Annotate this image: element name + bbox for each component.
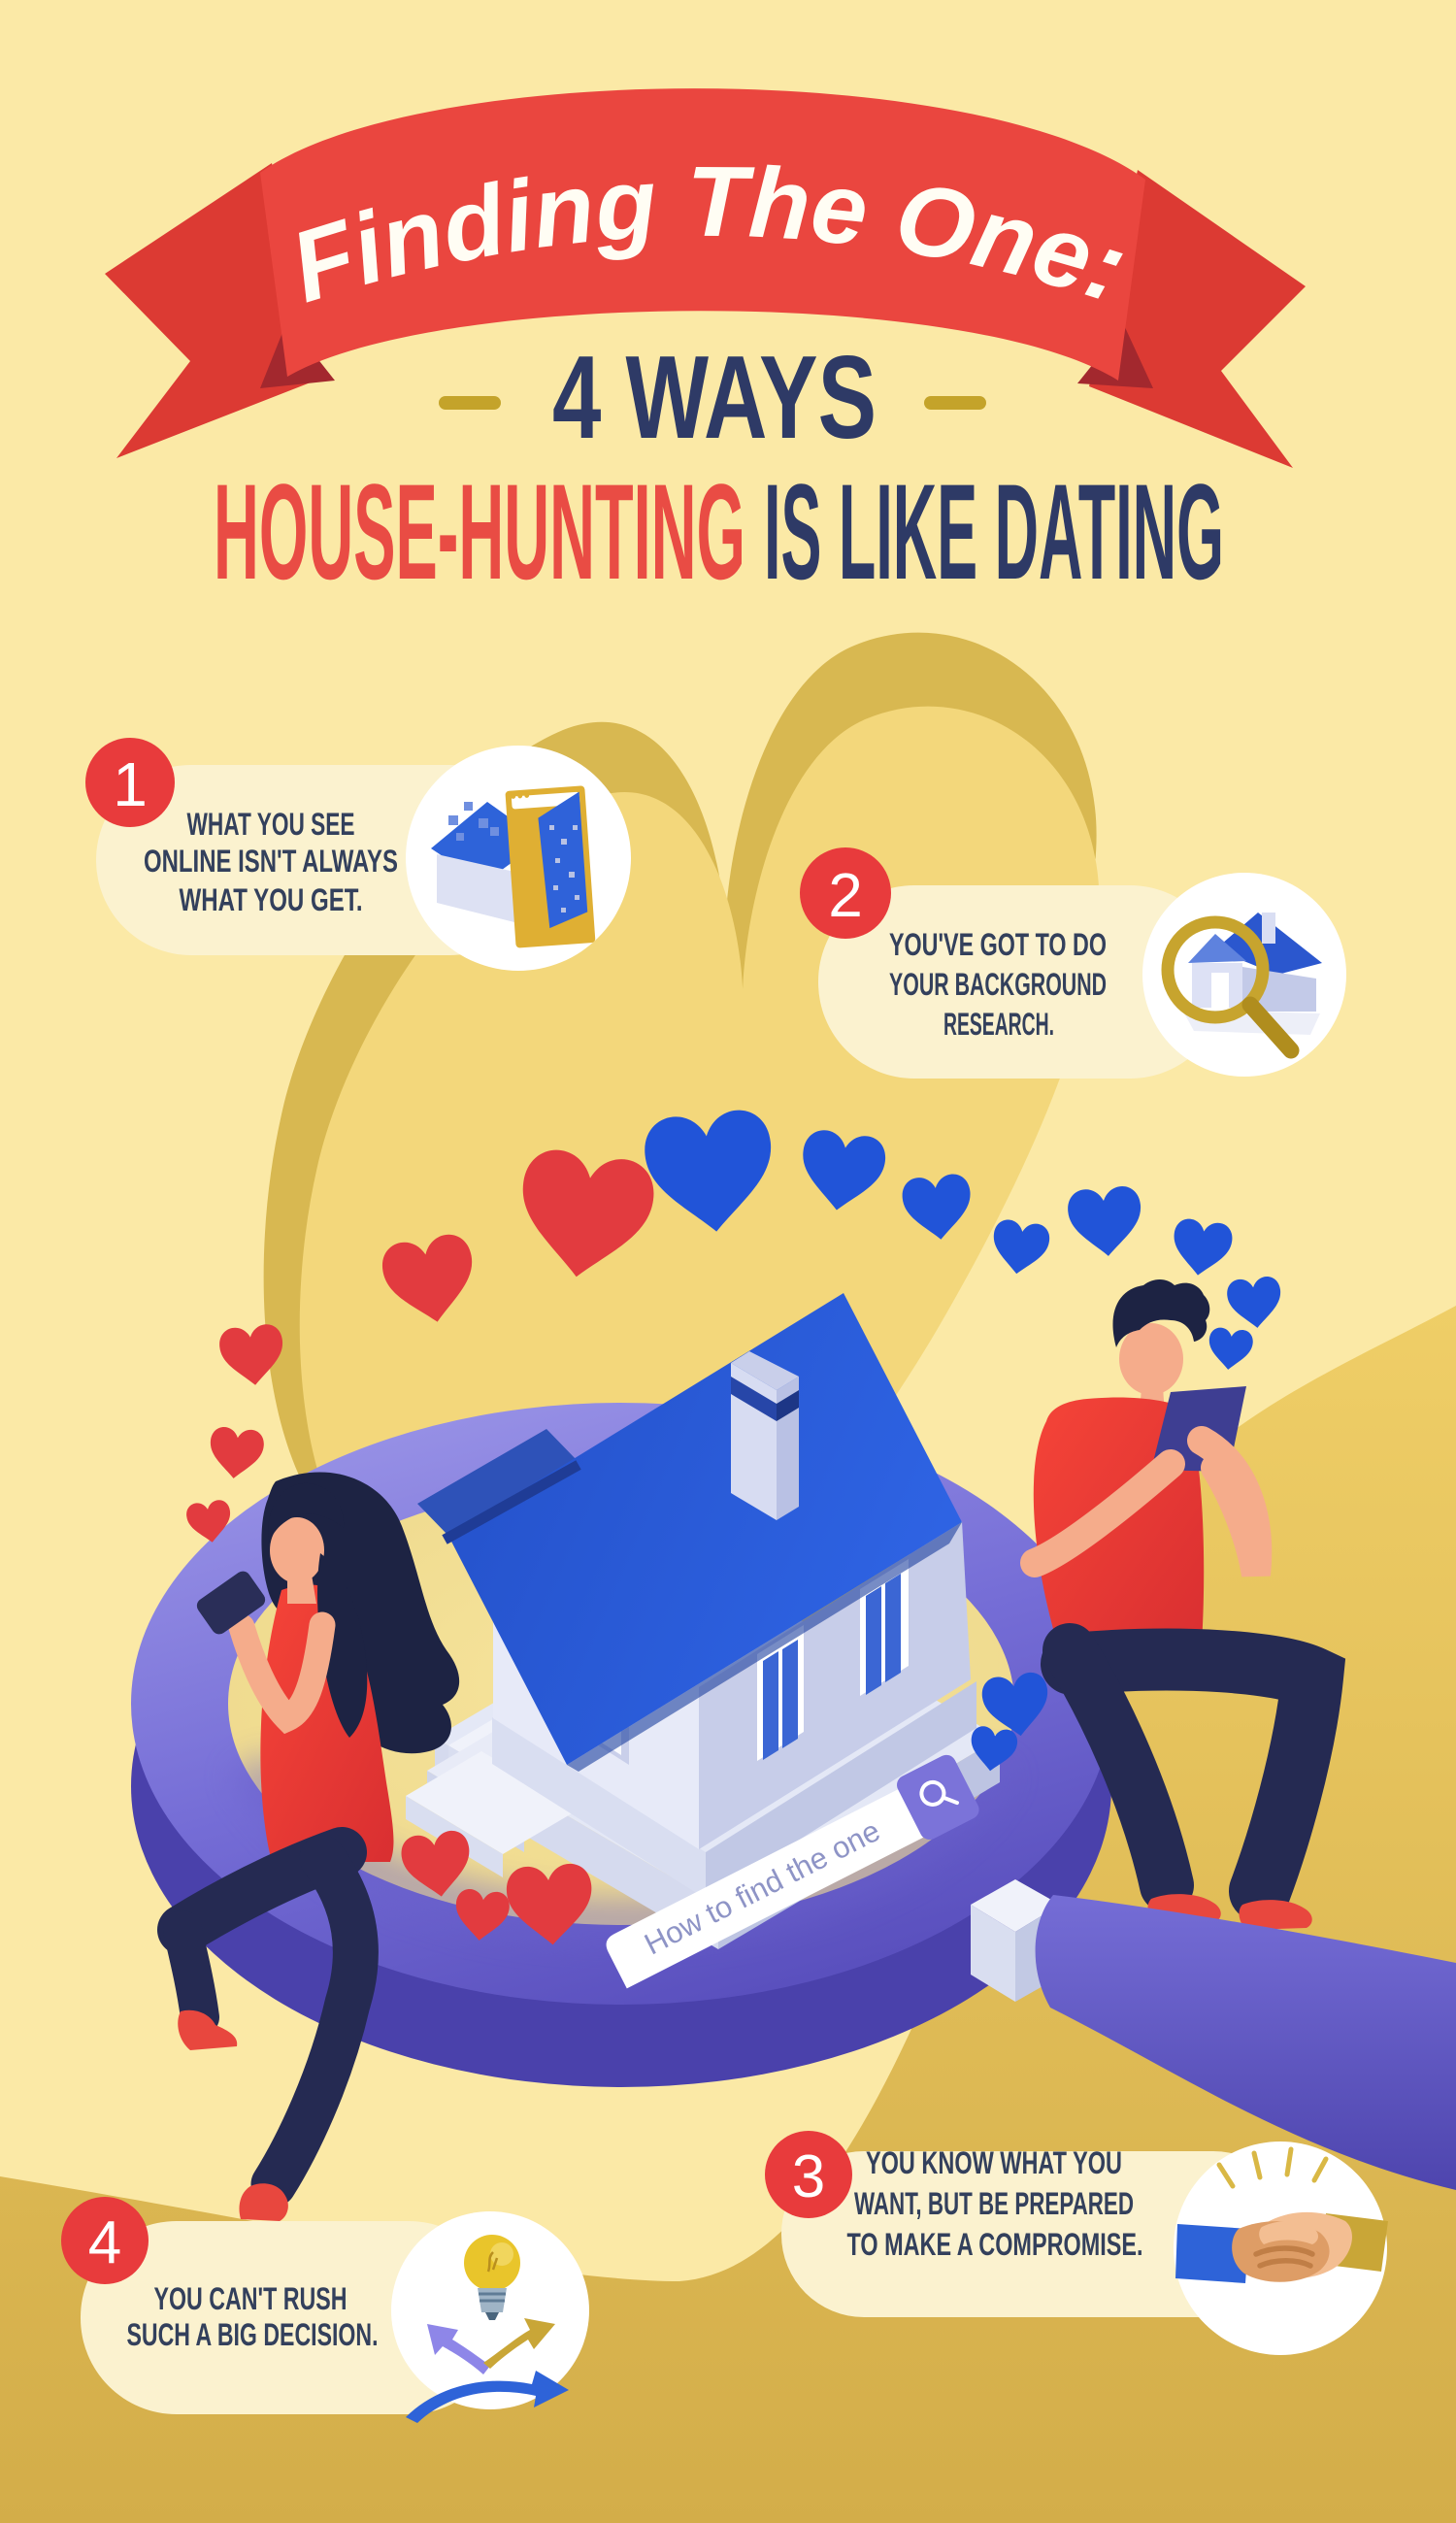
svg-text:WANT, BUT BE PREPARED: WANT, BUT BE PREPARED xyxy=(854,2186,1134,2221)
svg-text:YOU'VE GOT TO DO: YOU'VE GOT TO DO xyxy=(889,927,1107,962)
svg-text:HOUSE-HUNTING: HOUSE-HUNTING xyxy=(214,455,745,608)
svg-text:TO MAKE A COMPROMISE.: TO MAKE A COMPROMISE. xyxy=(847,2227,1143,2262)
svg-text:WHAT YOU GET.: WHAT YOU GET. xyxy=(180,882,363,917)
svg-text:YOUR BACKGROUND: YOUR BACKGROUND xyxy=(889,967,1107,1002)
svg-text:3: 3 xyxy=(792,2143,825,2210)
svg-text:4: 4 xyxy=(88,2209,121,2276)
svg-text:2: 2 xyxy=(828,860,863,930)
svg-text:4 WAYS: 4 WAYS xyxy=(552,331,877,463)
svg-text:SUCH A BIG DECISION.: SUCH A BIG DECISION. xyxy=(127,2317,379,2352)
svg-text:RESEARCH.: RESEARCH. xyxy=(943,1007,1054,1042)
svg-text:WHAT YOU SEE: WHAT YOU SEE xyxy=(187,807,355,842)
svg-text:YOU KNOW WHAT YOU: YOU KNOW WHAT YOU xyxy=(866,2145,1122,2180)
svg-text:ONLINE ISN'T ALWAYS: ONLINE ISN'T ALWAYS xyxy=(144,844,398,879)
svg-text:IS LIKE DATING: IS LIKE DATING xyxy=(764,455,1224,608)
svg-text:YOU CAN'T RUSH: YOU CAN'T RUSH xyxy=(154,2281,347,2316)
svg-text:1: 1 xyxy=(113,749,148,819)
